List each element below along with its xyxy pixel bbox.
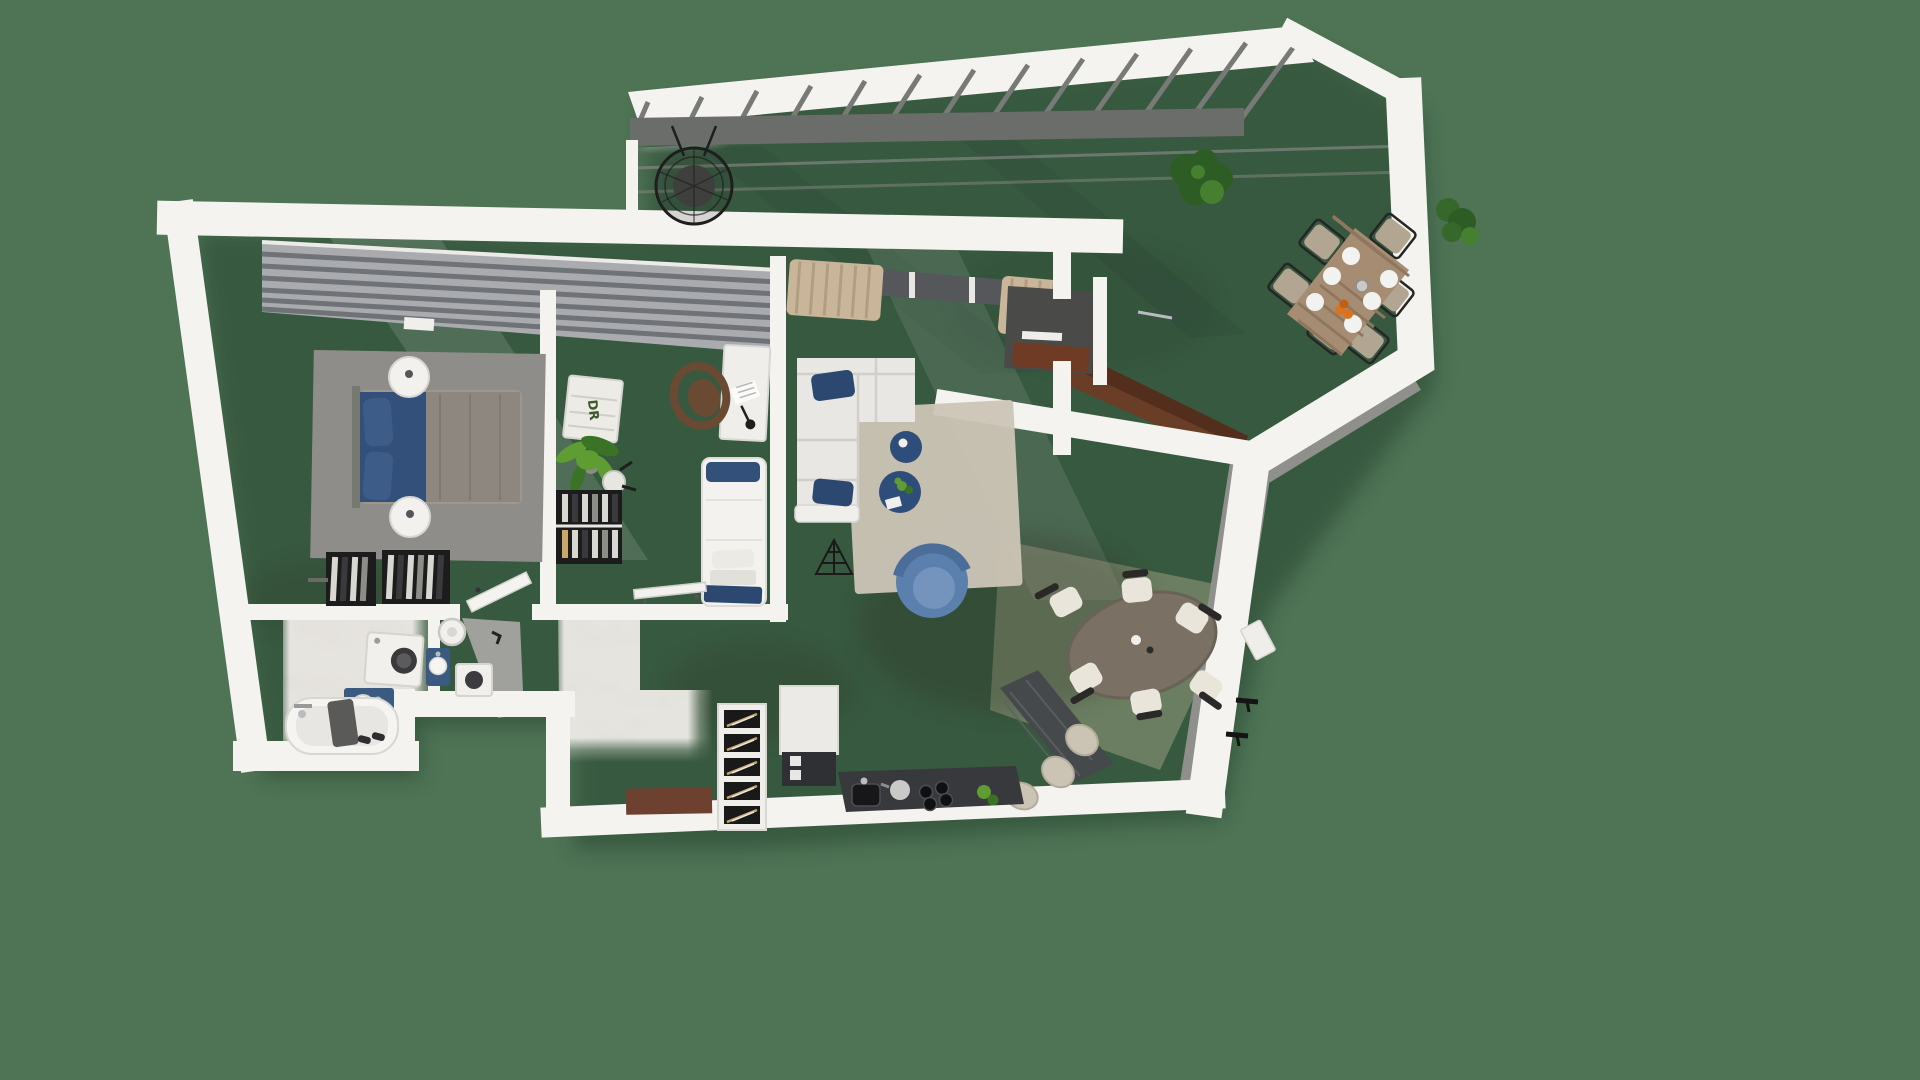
table-cup — [1131, 635, 1141, 645]
coffee-table-large — [879, 471, 921, 513]
wall-top — [174, 218, 1106, 236]
dresser-monogram: DR — [584, 399, 601, 421]
washing-machine — [364, 632, 423, 687]
sofa-armrest — [795, 505, 859, 522]
sink-faucet — [861, 778, 868, 785]
bed-headboard — [352, 386, 360, 508]
plate — [1363, 292, 1381, 310]
wc-vanity — [426, 648, 450, 686]
single-bed — [702, 458, 766, 606]
compact-laundry — [456, 664, 492, 696]
kitchen-counter — [838, 766, 1024, 812]
cooking-pot — [890, 780, 910, 800]
bed-pillow-1 — [362, 397, 393, 447]
plate — [1342, 247, 1360, 265]
blue-armchair — [896, 546, 968, 618]
pitcher — [1356, 280, 1368, 292]
floor-plan-svg: DR — [0, 0, 1920, 1080]
bedroom-wall-shelf — [404, 317, 435, 331]
herb-plant-2 — [988, 795, 999, 806]
floor-plan-render: DR — [0, 0, 1920, 1080]
single-bed-white-pillow — [712, 549, 755, 569]
dresser: DR — [563, 375, 623, 442]
plate — [1306, 293, 1324, 311]
wc-sink — [430, 658, 447, 675]
bathtub — [286, 698, 398, 754]
kitchen-sink — [852, 784, 880, 806]
double-bed-duvet — [424, 392, 520, 502]
entry-mat — [626, 787, 712, 814]
table-vase — [1147, 647, 1154, 654]
single-bed-navy-throw — [704, 585, 763, 604]
curtain-left — [786, 259, 884, 321]
storage-rack — [718, 704, 766, 830]
nightstand-bottom-decor — [406, 510, 414, 518]
open-wardrobe — [556, 490, 622, 564]
sofa-cushion-navy-2 — [812, 478, 854, 507]
single-bed-folded-blanket — [710, 570, 756, 585]
door-handle — [476, 588, 481, 593]
single-bed-navy-pillow — [706, 462, 760, 482]
tub-faucet-bar — [294, 704, 312, 708]
tall-cabinet — [780, 686, 838, 786]
bed-pillow-2 — [362, 451, 393, 501]
plate — [1323, 267, 1341, 285]
nightstand-top-decor — [405, 370, 413, 378]
coffee-table-small — [890, 431, 922, 463]
plate — [1380, 270, 1398, 288]
